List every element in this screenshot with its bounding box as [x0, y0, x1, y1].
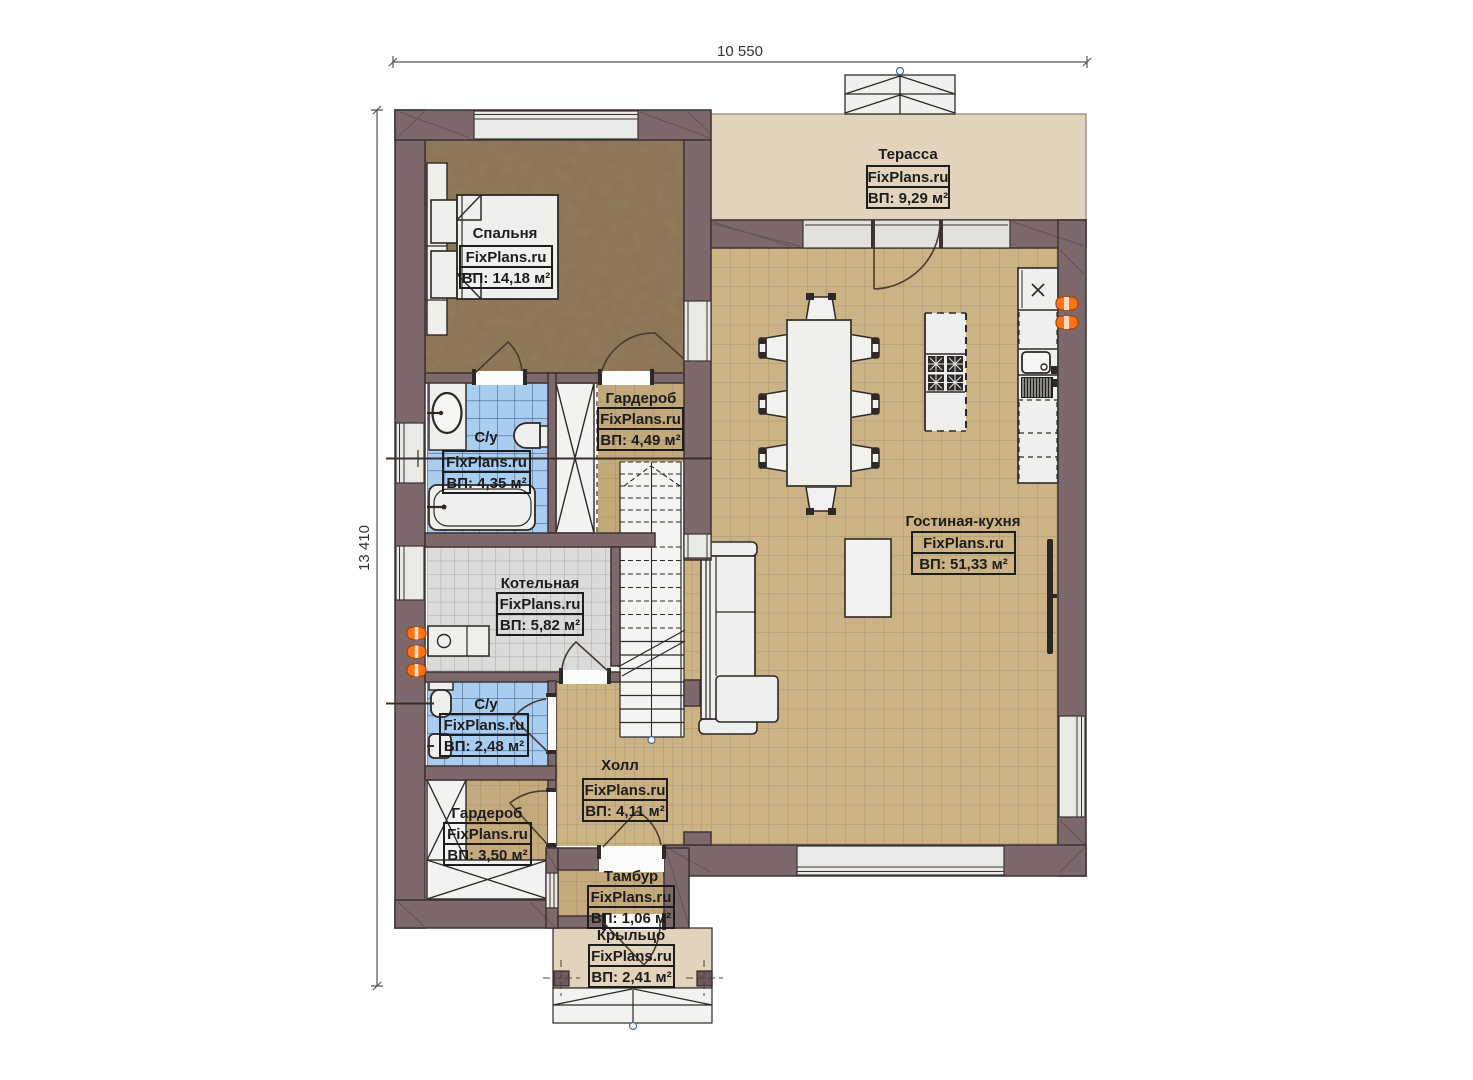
svg-text:ВП: 4,49 м²: ВП: 4,49 м² [600, 432, 680, 449]
svg-text:ВП: 4,35 м²: ВП: 4,35 м² [446, 475, 526, 492]
svg-text:ВП: 1,06 м²: ВП: 1,06 м² [591, 910, 671, 927]
svg-text:ВП: 2,48 м²: ВП: 2,48 м² [444, 738, 524, 755]
svg-text:ВП: 4,11 м²: ВП: 4,11 м² [585, 803, 664, 820]
svg-text:Тамбур: Тамбур [604, 868, 658, 885]
svg-text:FixPlans.ru: FixPlans.ru [868, 169, 949, 186]
svg-text:FixPlans.ru: FixPlans.ru [500, 596, 581, 613]
svg-text:FixPlans.ru: FixPlans.ru [600, 411, 681, 428]
svg-text:13 410: 13 410 [356, 525, 373, 571]
svg-text:ВП: 5,82 м²: ВП: 5,82 м² [500, 617, 580, 634]
svg-text:Гостиная-кухня: Гостиная-кухня [906, 513, 1021, 530]
svg-text:С/у: С/у [474, 696, 498, 713]
svg-text:FixPlans.ru: FixPlans.ru [444, 717, 525, 734]
svg-text:FixPlans.ru: FixPlans.ru [591, 948, 672, 965]
svg-text:Гардероб: Гардероб [452, 805, 523, 822]
svg-text:Крыльцо: Крыльцо [597, 927, 665, 944]
svg-text:FixPlans.ru: FixPlans.ru [923, 535, 1004, 552]
svg-text:FixPlans.ru: FixPlans.ru [591, 889, 672, 906]
svg-text:ВП: 2,41 м²: ВП: 2,41 м² [591, 969, 671, 986]
svg-text:10 550: 10 550 [717, 43, 763, 60]
svg-text:ВП: 14,18 м²: ВП: 14,18 м² [462, 270, 551, 287]
svg-text:Гардероб: Гардероб [606, 390, 677, 407]
svg-text:FixPlans.ru: FixPlans.ru [585, 782, 666, 799]
svg-text:Холл: Холл [601, 757, 639, 774]
svg-text:FixPlans.ru: FixPlans.ru [447, 826, 528, 843]
svg-text:Терасса: Терасса [878, 146, 938, 163]
svg-text:ВП: 51,33 м²: ВП: 51,33 м² [919, 556, 1008, 573]
svg-text:С/у: С/у [474, 429, 498, 446]
svg-text:Котельная: Котельная [501, 575, 580, 592]
svg-text:ВП: 3,50 м²: ВП: 3,50 м² [447, 847, 527, 864]
svg-text:FixPlans.ru: FixPlans.ru [446, 454, 527, 471]
svg-text:Спальня: Спальня [473, 225, 538, 242]
svg-text:FixPlans.ru: FixPlans.ru [466, 249, 547, 266]
svg-text:ВП: 9,29 м²: ВП: 9,29 м² [868, 190, 948, 207]
